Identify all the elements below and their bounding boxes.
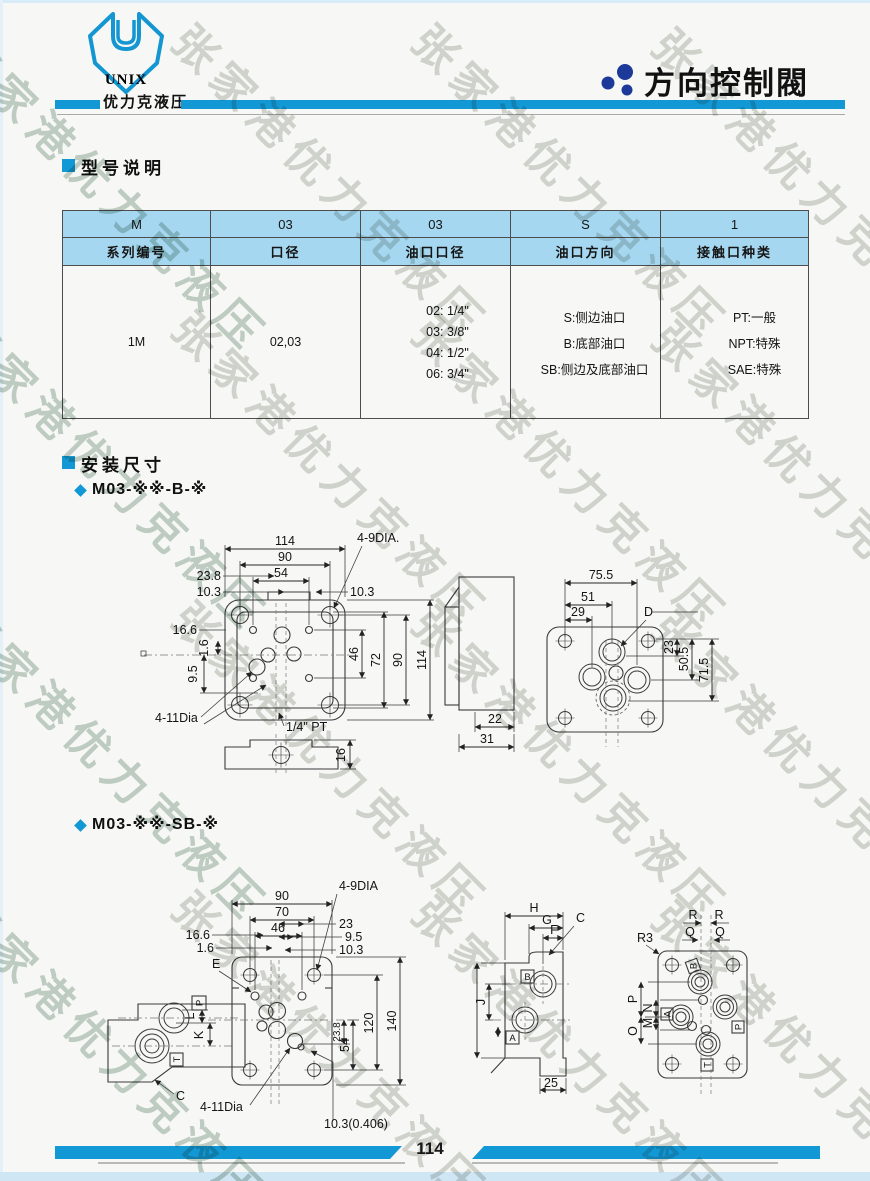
page-number: 114 (402, 1139, 458, 1159)
header-cell: 油口口径 (361, 238, 511, 266)
dim-label: 90 (275, 889, 289, 903)
variant-bullet-icon (74, 819, 87, 832)
footer-underline-right (472, 1162, 778, 1164)
port-label: B (524, 972, 530, 983)
header-cell: 接触口种类 (661, 238, 809, 266)
dim-label: K (192, 1030, 206, 1039)
port-label: T (703, 1062, 714, 1068)
footer-underline-left (98, 1162, 405, 1164)
variant-bullet-icon (74, 484, 87, 497)
title-dots-icon (600, 62, 640, 102)
callout-label: 4-11Dia (155, 711, 198, 725)
table-code-row: M 03 03 S 1 (63, 211, 809, 238)
dim-label: 9.5 (186, 665, 200, 682)
dim-label: 71.5 (697, 658, 711, 682)
section-bullet-icon (62, 159, 75, 172)
dim-label: 140 (385, 1011, 399, 1032)
dim-label: 1.6 (197, 941, 214, 955)
dim-label: 54 (338, 1038, 352, 1052)
dim-label: 29 (571, 605, 585, 619)
port-size-option: 03: 3/8" (361, 325, 510, 339)
dim-label: J (474, 999, 488, 1005)
sb-side-section-view: B A H G F C J 25 (474, 901, 585, 1094)
connection-type-option: PT:一般 (661, 307, 808, 326)
subplate-port-face-view: 75.5 51 29 D 23 50.5 71.5 (547, 568, 719, 747)
footer-rule-left (55, 1146, 402, 1159)
dim-label: 72 (369, 653, 383, 667)
dim-label: 75.5 (589, 568, 613, 582)
dim-label: 10.3(0.406) (324, 1117, 388, 1131)
code-cell: 03 (211, 211, 361, 238)
callout-label: R3 (637, 931, 653, 945)
port-label: B (689, 963, 700, 969)
plate-front-dimensions: 114 90 54 23.8 10.3 10.3 4-9DIA. 16.6 1.… (155, 531, 434, 734)
unix-logo: UNIX (80, 6, 172, 98)
dim-label: Q (685, 925, 695, 939)
connection-type-option: NPT:特殊 (661, 333, 808, 352)
plate-bottom-view: 16 (225, 734, 356, 774)
dim-label: H (529, 901, 538, 915)
dimension-drawing-m03-sb: P T L K C (100, 860, 850, 1145)
port-direction-cell: S:侧边油口 B:底部油口 SB:侧边及底部油口 (511, 266, 661, 419)
port-size-option: 06: 3/4" (361, 367, 510, 381)
connection-type-option: SAE:特殊 (661, 359, 808, 378)
header-underline (57, 114, 845, 115)
callout-label: 4-11Dia (200, 1100, 243, 1114)
variant-title-sb: M03-※※-SB-※ (92, 814, 219, 834)
port-label: P (734, 1024, 745, 1030)
sb-plate-front-view: 90 70 46 23 9.5 10.3 16.6 1.6 E 4-9DIA (186, 879, 406, 1131)
dim-label: 23.8 (197, 569, 221, 583)
dim-label: 46 (347, 647, 361, 661)
dim-label: P (626, 995, 640, 1003)
port-direction-option: S:侧边油口 (511, 307, 660, 326)
section-title-model: 型号说明 (81, 154, 165, 179)
section-bullet-icon (62, 456, 75, 469)
plate-front-view (141, 592, 352, 728)
callout-label: D (644, 605, 653, 619)
port-label: 1/4" PT (286, 720, 328, 734)
code-cell: 1 (661, 211, 809, 238)
dim-label: 51 (581, 590, 595, 604)
dim-label: 46 (271, 921, 285, 935)
brand-name: 优力克液压 (103, 91, 188, 112)
dim-label: N (641, 1003, 655, 1012)
port-direction-option: SB:侧边及底部油口 (511, 359, 660, 378)
dim-label: 23 (662, 640, 676, 654)
table-header-row: 系列编号 口径 油口口径 油口方向 接触口种类 (63, 238, 809, 266)
dim-label: 50.5 (677, 647, 691, 671)
callout-label: 4-9DIA (339, 879, 379, 893)
callout-label: C (576, 911, 585, 925)
dim-label: 114 (415, 650, 429, 670)
port-size-option: 04: 1/2" (361, 346, 510, 360)
port-label: T (172, 1056, 183, 1062)
code-cell: 03 (361, 211, 511, 238)
dim-label: 114 (275, 534, 295, 548)
table-body-row: 1M 02,03 02: 1/4" 03: 3/8" 04: 1/2" 06: … (63, 266, 809, 419)
header-cell: 油口方向 (511, 238, 661, 266)
dim-label: 120 (362, 1013, 376, 1034)
callout-label: E (212, 957, 220, 971)
dim-label: O (626, 1026, 640, 1036)
port-label: A (509, 1033, 516, 1044)
dim-label: Q (715, 925, 725, 939)
code-cell: M (63, 211, 211, 238)
port-direction-option: B:底部油口 (511, 333, 660, 352)
dim-label: 31 (480, 732, 494, 746)
port-label: P (195, 1000, 206, 1006)
dim-label: R (688, 908, 697, 922)
connection-type-cell: PT:一般 NPT:特殊 SAE:特殊 (661, 266, 809, 419)
scan-edge-bottom (0, 1172, 870, 1181)
scan-edge-left (0, 0, 3, 1181)
sb-bottom-port-view: B A P T R3 R R Q Q P N (626, 908, 747, 1095)
dim-label: 16 (334, 748, 348, 762)
dim-label: 10.3 (339, 943, 363, 957)
sb-side-view: P T L K C (108, 996, 245, 1103)
callout-label: 4-9DIA. (357, 531, 399, 545)
logo-text: UNIX (105, 72, 147, 88)
plate-side-view: 22 31 (445, 577, 514, 752)
model-code-table: M 03 03 S 1 系列编号 口径 油口口径 油口方向 接触口种类 1M 0… (62, 210, 809, 419)
callout-label: C (176, 1089, 185, 1103)
page-title: 方向控制閥 (644, 58, 809, 103)
code-cell: S (511, 211, 661, 238)
dim-label: L (183, 1012, 197, 1019)
dim-label: 9.5 (345, 930, 362, 944)
header-cell: 口径 (211, 238, 361, 266)
dim-label: M (641, 1018, 655, 1028)
dim-label: 23 (339, 917, 353, 931)
series-cell: 1M (63, 266, 211, 419)
dim-label: 1.6 (197, 639, 211, 656)
dim-label: 16.6 (173, 623, 197, 637)
catalog-page: UNIX 优力克液压 方向控制閥 型号说明 M 03 03 S 1 系列编号 口… (0, 0, 870, 1181)
port-label: A (663, 1010, 674, 1017)
dim-label: F (550, 923, 558, 937)
header-cell: 系列编号 (63, 238, 211, 266)
scan-edge-top (0, 0, 870, 3)
port-size-cell: 02: 1/4" 03: 3/8" 04: 1/2" 06: 3/4" (361, 266, 511, 419)
dim-label: 10.3 (197, 585, 221, 599)
dim-label: 10.3 (350, 585, 374, 599)
dim-label: R (714, 908, 723, 922)
brand-rule-left (55, 100, 100, 109)
logo-u-icon (118, 20, 134, 43)
dim-label: 54 (274, 566, 288, 580)
dim-label: 90 (391, 653, 405, 667)
dim-label: 25 (544, 1076, 558, 1090)
dim-label: 22 (488, 712, 502, 726)
dim-label: 70 (275, 905, 289, 919)
section-title-mount: 安装尺寸 (81, 451, 165, 476)
variant-title-b: M03-※※-B-※ (92, 479, 207, 499)
dim-label: 90 (278, 550, 292, 564)
footer-rule-right (472, 1146, 820, 1159)
dim-label: 16.6 (186, 928, 210, 942)
bore-cell: 02,03 (211, 266, 361, 419)
dimension-drawing-m03-b: 114 90 54 23.8 10.3 10.3 4-9DIA. 16.6 1.… (100, 515, 850, 805)
port-size-option: 02: 1/4" (361, 304, 510, 318)
